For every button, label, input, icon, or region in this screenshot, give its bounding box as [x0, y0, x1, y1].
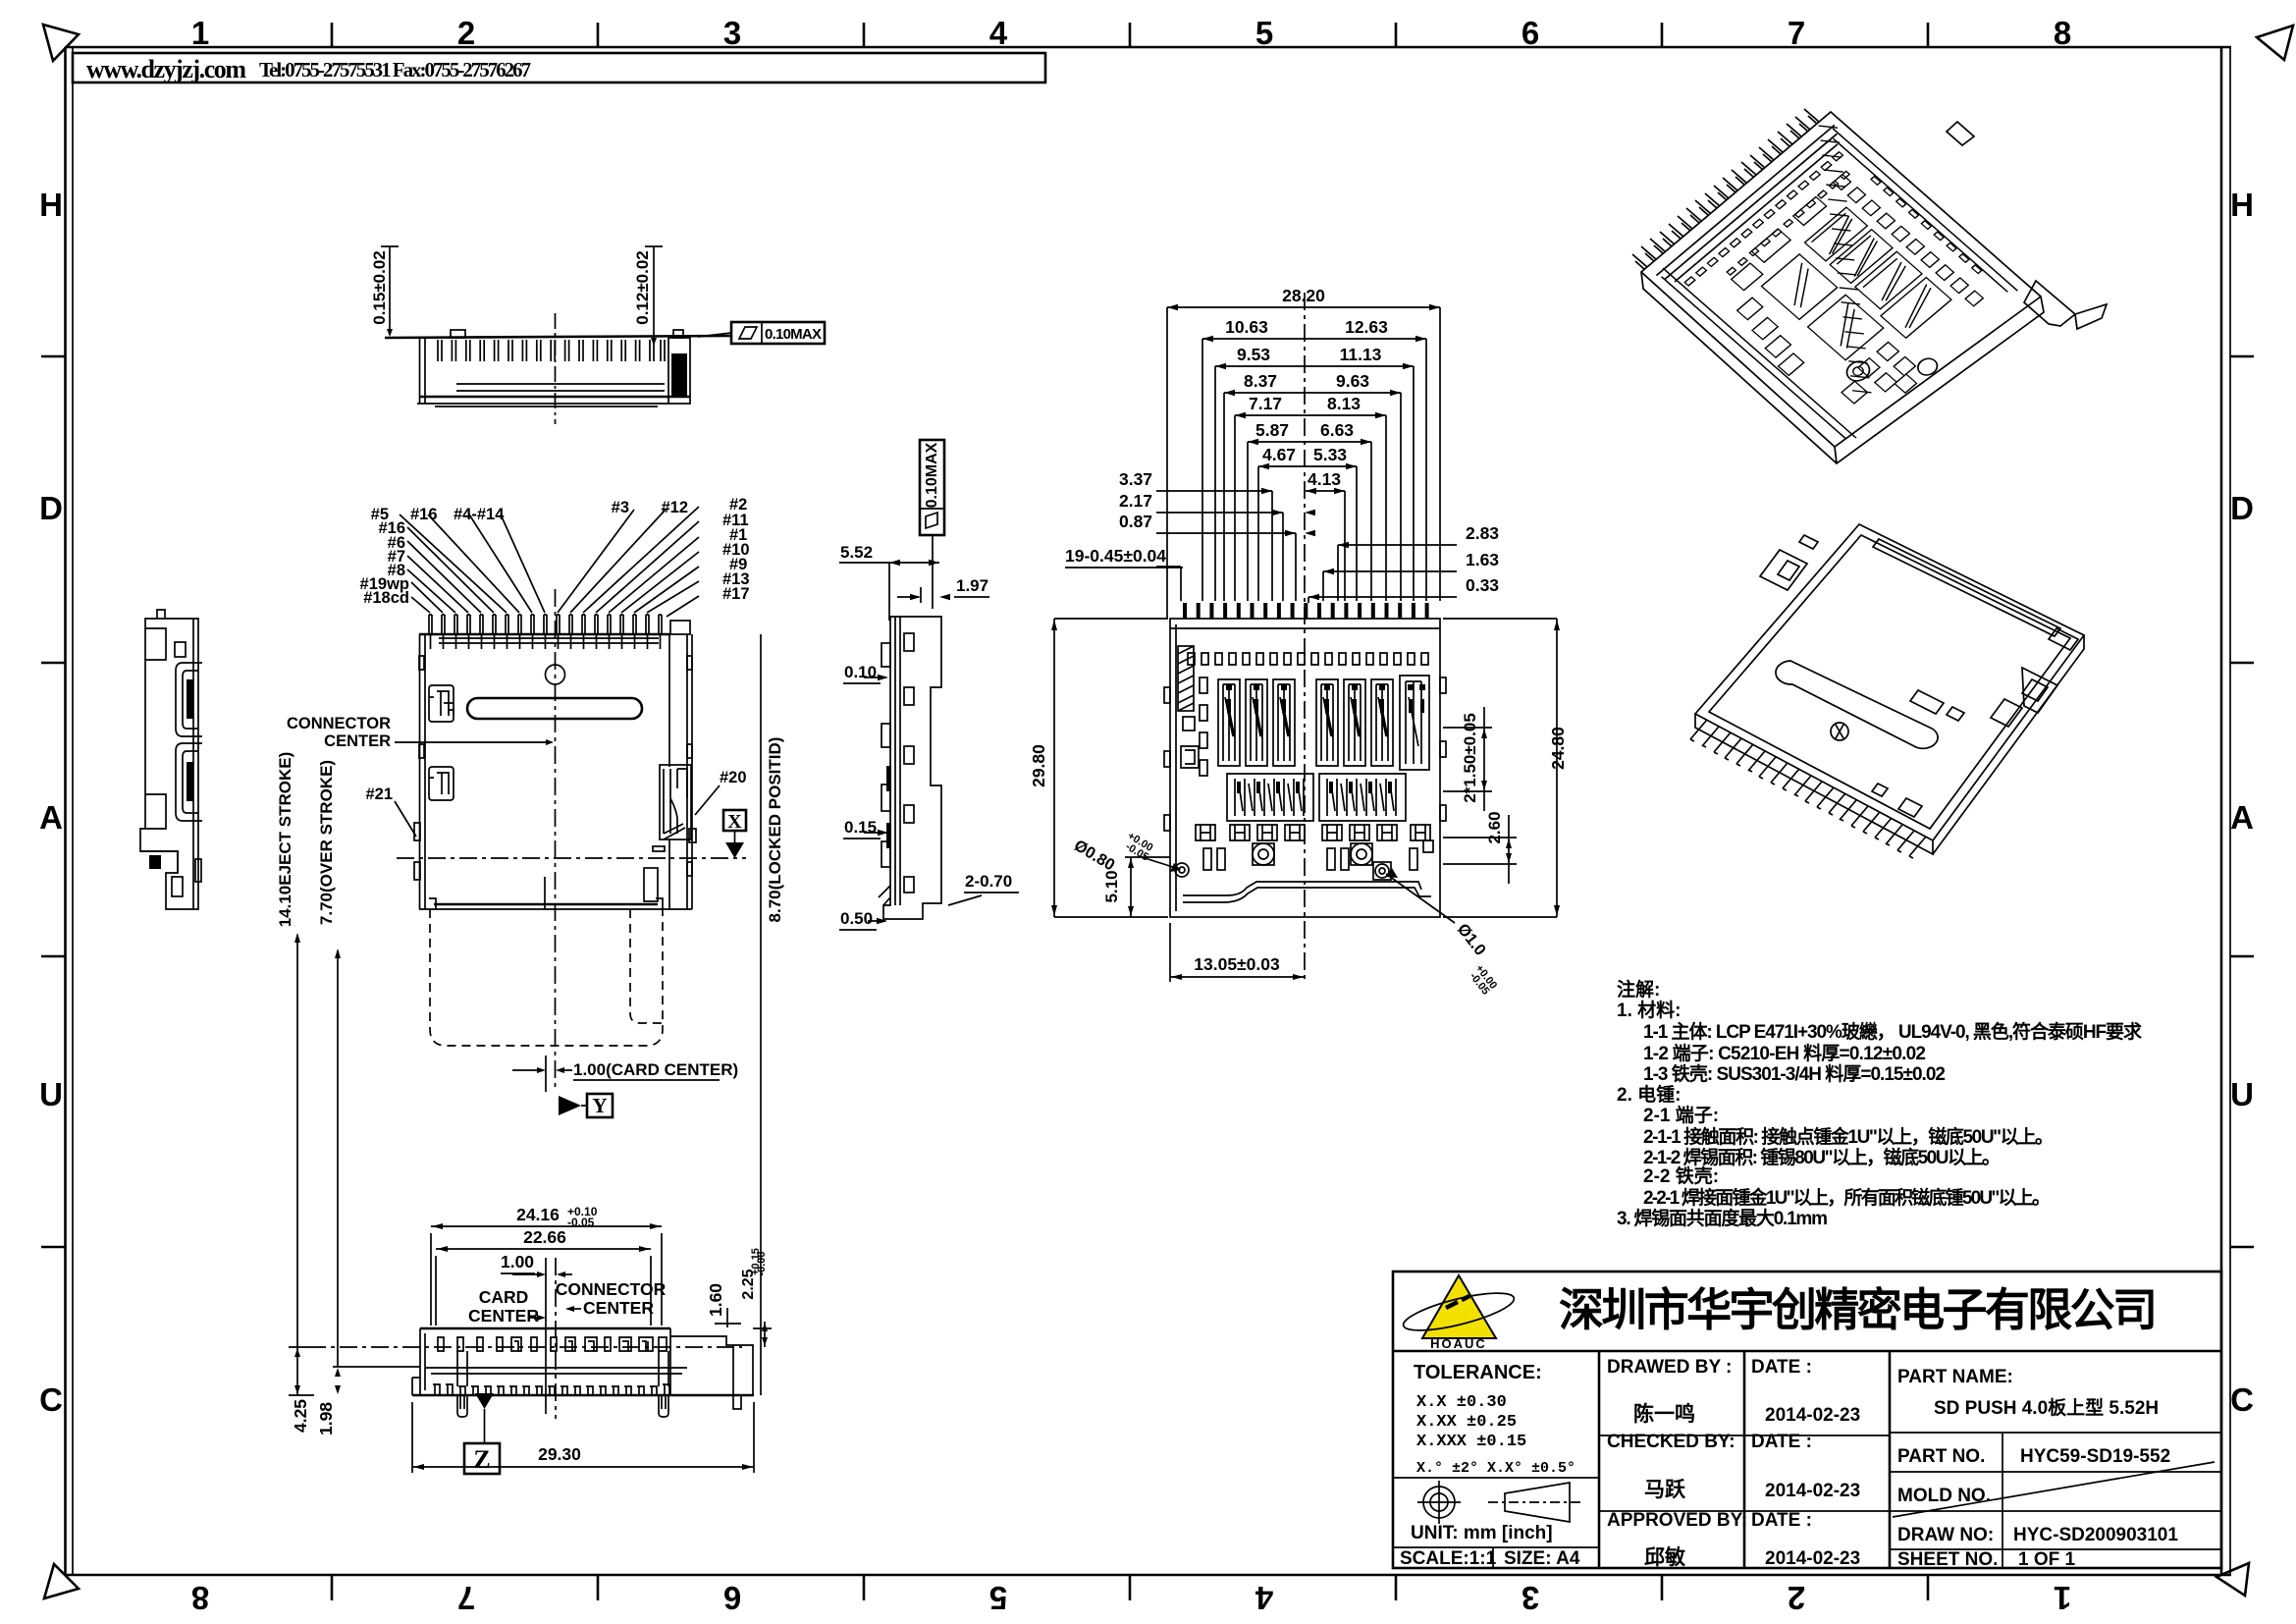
svg-text:2. 电锺:: 2. 电锺:: [1617, 1083, 1681, 1106]
svg-text:2014-02-23: 2014-02-23: [1765, 1481, 1860, 1501]
svg-text:0.87: 0.87: [1119, 512, 1152, 531]
svg-text:12.63: 12.63: [1345, 317, 1388, 337]
svg-text:U: U: [39, 1076, 63, 1112]
svg-text:0.15±0.02: 0.15±0.02: [370, 250, 389, 325]
svg-text:5.33: 5.33: [1313, 445, 1347, 464]
svg-text:2-1-1 接触面积: 接触点锺金1U"以上，镃底50U"以: 2-1-1 接触面积: 接触点锺金1U"以上，镃底50U"以上。: [1643, 1125, 2054, 1148]
svg-text:DATE :: DATE :: [1751, 1357, 1812, 1378]
svg-text:C: C: [39, 1381, 63, 1418]
svg-text:2.17: 2.17: [1119, 491, 1152, 511]
svg-text:MOLD NO.: MOLD NO.: [1897, 1486, 1991, 1506]
svg-text:1.98: 1.98: [316, 1402, 336, 1435]
svg-text:6.63: 6.63: [1320, 420, 1354, 440]
svg-text:CHECKED BY:: CHECKED BY:: [1607, 1432, 1735, 1452]
svg-text:马跃: 马跃: [1644, 1479, 1686, 1501]
svg-text:1.63: 1.63: [1466, 550, 1499, 569]
svg-text:7: 7: [457, 1580, 475, 1616]
svg-text:U: U: [2230, 1076, 2254, 1112]
svg-text:CONNECTOR: CONNECTOR: [556, 1279, 667, 1299]
svg-text:A: A: [39, 799, 63, 836]
svg-text:3: 3: [1522, 1580, 1539, 1616]
svg-text:1-3 铁壳: SUS301-3/4H 料厚=0.15±0.: 1-3 铁壳: SUS301-3/4H 料厚=0.15±0.02: [1643, 1062, 1946, 1085]
svg-text:SD PUSH 4.0板上型 5.52H: SD PUSH 4.0板上型 5.52H: [1934, 1396, 2159, 1419]
svg-text:0.15: 0.15: [844, 818, 877, 837]
svg-text:1.97: 1.97: [956, 576, 988, 595]
svg-text:www.dzyjzj.com: www.dzyjzj.com: [86, 55, 246, 83]
svg-text:13.05±0.03: 13.05±0.03: [1194, 954, 1280, 974]
svg-text:14.10EJECT STROKE): 14.10EJECT STROKE): [276, 752, 294, 928]
svg-text:3. 焊锡面共面度最大0.1mm: 3. 焊锡面共面度最大0.1mm: [1617, 1207, 1828, 1229]
svg-text:APPROVED BY:: APPROVED BY:: [1607, 1510, 1747, 1531]
svg-text:5: 5: [1255, 15, 1273, 51]
svg-text:HYC-SD200903101: HYC-SD200903101: [2013, 1525, 2178, 1545]
svg-text:8: 8: [191, 1580, 209, 1616]
svg-text:5: 5: [989, 1580, 1007, 1616]
svg-text:5.87: 5.87: [1255, 420, 1289, 440]
svg-text:D: D: [39, 490, 63, 526]
svg-text:深圳市华宇创精密电子有限公司: 深圳市华宇创精密电子有限公司: [1559, 1284, 2158, 1335]
svg-text:CENTER: CENTER: [583, 1298, 654, 1318]
svg-text:注解:: 注解:: [1617, 978, 1660, 1001]
svg-text:#17: #17: [722, 585, 750, 603]
svg-text:7: 7: [1788, 15, 1805, 51]
svg-text:3.37: 3.37: [1119, 469, 1152, 489]
svg-text:6: 6: [723, 1580, 741, 1616]
svg-text:3: 3: [723, 15, 741, 51]
svg-text:0.33: 0.33: [1466, 575, 1499, 595]
svg-text:#4-#14: #4-#14: [454, 506, 505, 523]
svg-text:X.° ±2° X.X° ±0.5°: X.° ±2° X.X° ±0.5°: [1416, 1460, 1575, 1477]
svg-text:1.60: 1.60: [706, 1283, 725, 1317]
svg-text:X.XX ±0.25: X.XX ±0.25: [1416, 1413, 1517, 1432]
svg-text:0.10: 0.10: [844, 663, 877, 681]
svg-text:DATE :: DATE :: [1751, 1510, 1812, 1531]
svg-text:29.30: 29.30: [538, 1444, 581, 1464]
svg-text:1 OF 1: 1 OF 1: [2018, 1549, 2076, 1570]
svg-text:4: 4: [1255, 1580, 1273, 1616]
svg-text:2: 2: [1788, 1580, 1805, 1616]
svg-text:8: 8: [2054, 15, 2071, 51]
svg-text:-0.05: -0.05: [567, 1216, 595, 1229]
svg-text:0.50: 0.50: [840, 909, 873, 928]
svg-text:X.X ±0.30: X.X ±0.30: [1416, 1393, 1507, 1412]
svg-text:0.10MAX: 0.10MAX: [765, 326, 822, 343]
svg-text:DATE :: DATE :: [1751, 1432, 1812, 1452]
svg-text:5.10: 5.10: [1102, 870, 1121, 902]
svg-text:29.80: 29.80: [1029, 744, 1048, 787]
svg-text:-0.00: -0.00: [756, 1251, 768, 1275]
svg-text:2-1 端子:: 2-1 端子:: [1643, 1104, 1719, 1126]
svg-text:H: H: [2230, 187, 2254, 223]
svg-text:7.17: 7.17: [1249, 394, 1282, 413]
svg-text:UNIT: mm [inch]: UNIT: mm [inch]: [1411, 1523, 1553, 1543]
svg-text:DRAW NO:: DRAW NO:: [1897, 1525, 1994, 1545]
svg-text:PART NAME:: PART NAME:: [1897, 1367, 2013, 1387]
svg-text:1-2 端子: C5210-EH 料厚=0.12±0.02: 1-2 端子: C5210-EH 料厚=0.12±0.02: [1643, 1042, 1926, 1064]
svg-text:#16: #16: [410, 506, 438, 523]
svg-text:X.XXX ±0.15: X.XXX ±0.15: [1416, 1433, 1526, 1451]
svg-text:28.20: 28.20: [1282, 286, 1325, 305]
svg-text:A: A: [2230, 799, 2254, 836]
svg-text:24.16: 24.16: [516, 1205, 560, 1224]
svg-text:9.53: 9.53: [1237, 345, 1270, 364]
svg-text:1.00(CARD CENTER): 1.00(CARD CENTER): [573, 1060, 738, 1079]
svg-text:Tel:0755-27575531 Fax:0755-27: Tel:0755-27575531 Fax:0755-27576267: [259, 58, 531, 81]
svg-text:1: 1: [191, 15, 209, 51]
svg-text:X: X: [727, 811, 742, 833]
svg-text:4.25: 4.25: [291, 1399, 310, 1433]
svg-text:HOAUC: HOAUC: [1430, 1336, 1487, 1351]
svg-text:#21: #21: [365, 785, 393, 803]
svg-text:2-2-1 焊接面锺金1U"以上，所有面积镃底锺50U"以上: 2-2-1 焊接面锺金1U"以上，所有面积镃底锺50U"以上。: [1643, 1186, 2051, 1209]
svg-text:8.13: 8.13: [1327, 394, 1361, 413]
svg-text:4.13: 4.13: [1308, 469, 1341, 489]
svg-text:CARD: CARD: [479, 1287, 529, 1307]
svg-text:11.13: 11.13: [1340, 345, 1382, 364]
svg-text:1.00: 1.00: [501, 1252, 534, 1272]
svg-text:#18cd: #18cd: [363, 589, 409, 607]
svg-text:1. 材料:: 1. 材料:: [1617, 999, 1681, 1021]
svg-text:#20: #20: [720, 769, 747, 786]
svg-text:1: 1: [2054, 1580, 2071, 1616]
svg-text:2*1.50±0.05: 2*1.50±0.05: [1461, 713, 1479, 803]
svg-text:2-1-2 焊锡面积: 锺锡80U"以上，镃底50U以上。: 2-1-2 焊锡面积: 锺锡80U"以上，镃底50U以上。: [1643, 1146, 2001, 1168]
svg-text:D: D: [2230, 490, 2254, 526]
svg-text:邱敏: 邱敏: [1644, 1545, 1685, 1569]
svg-text:CONNECTOR: CONNECTOR: [287, 715, 391, 732]
svg-text:10.63: 10.63: [1225, 317, 1268, 337]
svg-text:SCALE:1:1: SCALE:1:1: [1400, 1548, 1497, 1569]
svg-text:HYC59-SD19-552: HYC59-SD19-552: [2020, 1446, 2170, 1467]
svg-text:C: C: [2230, 1381, 2254, 1418]
svg-text:SIZE: A4: SIZE: A4: [1504, 1548, 1580, 1569]
svg-text:6: 6: [1522, 15, 1539, 51]
svg-text:CENTER: CENTER: [324, 732, 391, 750]
svg-text:DRAWED BY :: DRAWED BY :: [1607, 1357, 1732, 1378]
svg-text:2-2 铁壳:: 2-2 铁壳:: [1643, 1164, 1719, 1187]
svg-text:TOLERANCE:: TOLERANCE:: [1414, 1362, 1542, 1383]
svg-text:陈一鸣: 陈一鸣: [1633, 1402, 1695, 1426]
svg-text:1-1 主体: LCP E471I+30%玻纞， UL94: 1-1 主体: LCP E471I+30%玻纞， UL94V-0, 黑色,符合泰…: [1643, 1020, 2143, 1043]
svg-text:22.66: 22.66: [523, 1227, 566, 1247]
svg-text:2.83: 2.83: [1466, 523, 1499, 543]
svg-text:Y: Y: [592, 1094, 607, 1117]
svg-text:PART NO.: PART NO.: [1897, 1446, 1985, 1467]
svg-text:Z: Z: [473, 1445, 490, 1474]
svg-text:0.12±0.02: 0.12±0.02: [633, 250, 652, 325]
svg-text:#3: #3: [612, 499, 629, 516]
svg-text:0.10MAX: 0.10MAX: [924, 442, 940, 508]
svg-text:7.70(OVER STROKE): 7.70(OVER STROKE): [317, 760, 336, 925]
svg-text:2014-02-23: 2014-02-23: [1765, 1548, 1860, 1569]
svg-text:H: H: [39, 187, 63, 223]
svg-text:24.80: 24.80: [1548, 727, 1568, 770]
svg-text:19-0.45±0.04: 19-0.45±0.04: [1065, 546, 1166, 566]
svg-text:2-0.70: 2-0.70: [965, 872, 1012, 891]
svg-text:5.52: 5.52: [840, 543, 873, 562]
svg-text:2.60: 2.60: [1485, 811, 1504, 843]
svg-text:2014-02-23: 2014-02-23: [1765, 1405, 1860, 1426]
svg-text:8.70(LOCKED POSITID): 8.70(LOCKED POSITID): [766, 737, 784, 923]
svg-text:CENTER: CENTER: [468, 1306, 539, 1326]
svg-text:2: 2: [457, 15, 475, 51]
svg-text:8.37: 8.37: [1244, 371, 1277, 391]
svg-text:4.67: 4.67: [1262, 445, 1296, 464]
svg-text:SHEET NO.: SHEET NO.: [1897, 1549, 1998, 1570]
svg-text:9.63: 9.63: [1336, 371, 1369, 391]
svg-text:4: 4: [989, 15, 1008, 51]
svg-text:#12: #12: [661, 499, 688, 516]
